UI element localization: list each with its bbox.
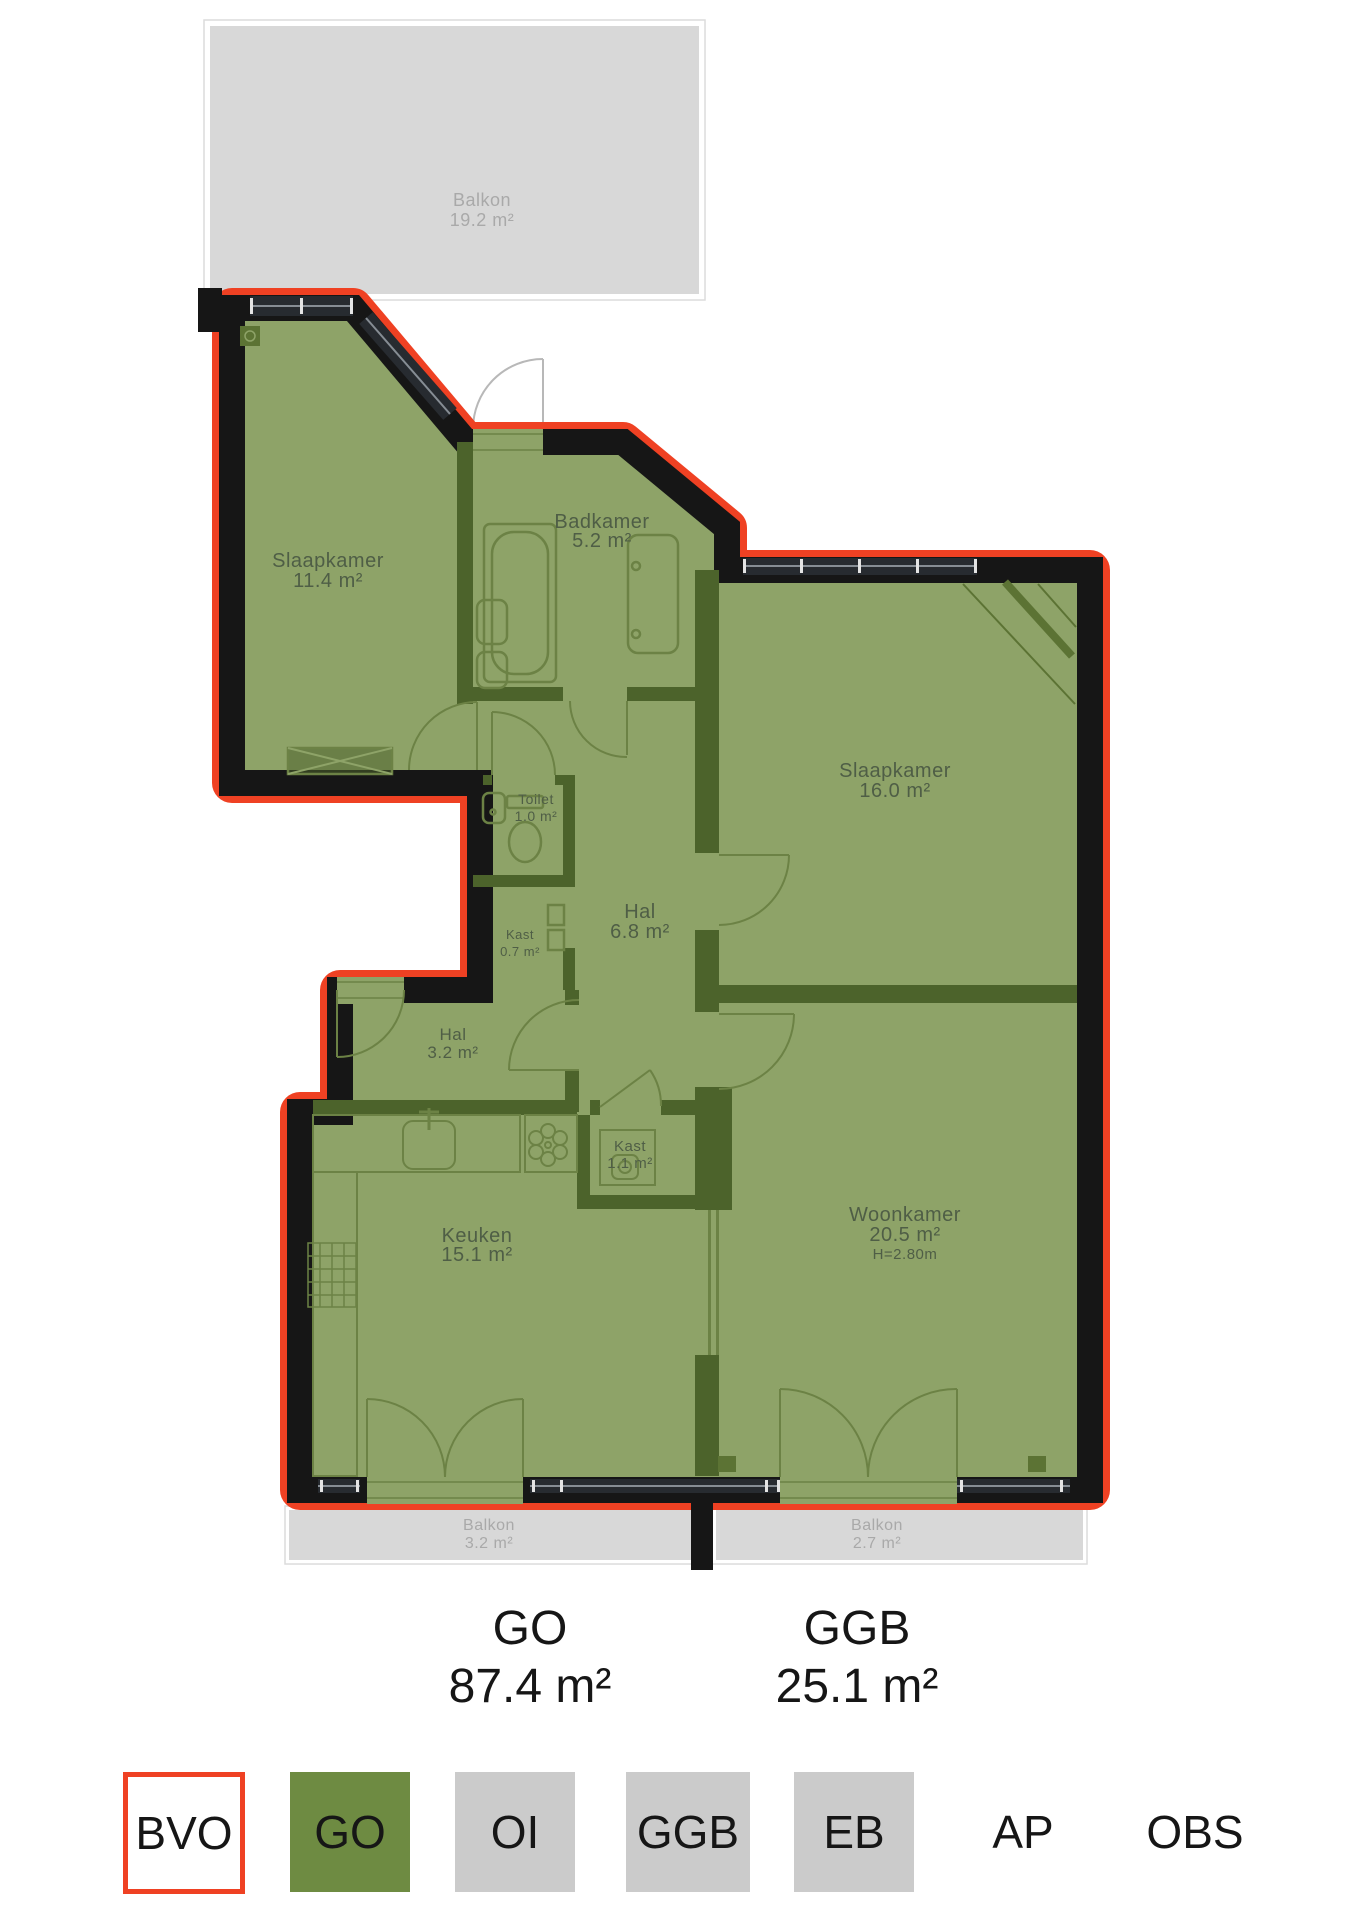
label-hal2-area: 3.2 m² bbox=[427, 1043, 478, 1062]
vent-square-bottom-1 bbox=[718, 1456, 736, 1472]
label-woonkamer-area: 20.5 m² bbox=[869, 1224, 940, 1246]
wardrobe-icon bbox=[288, 748, 392, 774]
totals-go-area: 87.4 m² bbox=[430, 1660, 630, 1714]
label-balkon-rechts-area: 2.7 m² bbox=[853, 1535, 902, 1552]
label-keuken-area: 15.1 m² bbox=[441, 1244, 512, 1266]
label-toilet-name: Toilet bbox=[518, 791, 554, 807]
label-kast-groot-name: Kast bbox=[614, 1138, 646, 1155]
label-kast-klein-name: Kast bbox=[506, 927, 534, 942]
legend-item-bvo: BVO bbox=[123, 1772, 245, 1894]
legend-item-ap: AP bbox=[953, 1772, 1093, 1892]
totals-go-code: GO bbox=[430, 1602, 630, 1656]
legend-label-obs: OBS bbox=[1146, 1805, 1243, 1859]
label-slaapkamer1-area: 11.4 m² bbox=[293, 570, 363, 592]
window-slaapkamer2 bbox=[743, 558, 977, 575]
floorplan-page: Balkon 19.2 m² Slaapkamer 11.4 m² Badkam… bbox=[0, 0, 1358, 1920]
label-toilet-area: 1.0 m² bbox=[515, 808, 558, 824]
label-balkon-boven-area: 19.2 m² bbox=[450, 210, 515, 230]
wall-stub-top-left bbox=[198, 288, 222, 332]
label-slaapkamer2-name: Slaapkamer bbox=[839, 760, 951, 782]
label-hal-area: 6.8 m² bbox=[610, 921, 670, 943]
legend-label-ap: AP bbox=[992, 1805, 1053, 1859]
legend-item-eb: EB bbox=[794, 1772, 914, 1892]
legend-item-obs: OBS bbox=[1125, 1772, 1265, 1892]
legend-label-eb: EB bbox=[823, 1805, 884, 1859]
totals-ggb-code: GGB bbox=[757, 1602, 957, 1656]
label-slaapkamer2-area: 16.0 m² bbox=[859, 780, 930, 802]
floor-plan-svg: Balkon 19.2 m² Slaapkamer 11.4 m² Badkam… bbox=[0, 0, 1358, 1580]
legend-item-ggb: GGB bbox=[626, 1772, 750, 1892]
label-hal2-name: Hal bbox=[439, 1025, 466, 1044]
label-balkon-links-name: Balkon bbox=[463, 1517, 515, 1534]
totals-ggb: GGB 25.1 m² bbox=[757, 1602, 957, 1714]
label-badkamer-area: 5.2 m² bbox=[572, 530, 632, 552]
legend-item-go: GO bbox=[290, 1772, 410, 1892]
legend-label-go: GO bbox=[314, 1805, 386, 1859]
legend-label-bvo: BVO bbox=[135, 1806, 232, 1860]
label-woonkamer-height: H=2.80m bbox=[873, 1246, 938, 1263]
label-woonkamer-name: Woonkamer bbox=[849, 1204, 961, 1226]
label-balkon-links-area: 3.2 m² bbox=[465, 1535, 514, 1552]
balcony-divider-wall bbox=[691, 1497, 713, 1570]
vent-square-bottom-2 bbox=[1028, 1456, 1046, 1472]
label-hal-name: Hal bbox=[624, 901, 656, 923]
totals-go: GO 87.4 m² bbox=[430, 1602, 630, 1714]
balcony-door-arc bbox=[473, 359, 543, 429]
label-kast-klein-area: 0.7 m² bbox=[500, 944, 540, 959]
legend-label-oi: OI bbox=[491, 1805, 540, 1859]
label-slaapkamer1-name: Slaapkamer bbox=[272, 550, 384, 572]
label-balkon-rechts-name: Balkon bbox=[851, 1517, 903, 1534]
label-balkon-boven-name: Balkon bbox=[453, 190, 511, 210]
totals-ggb-area: 25.1 m² bbox=[757, 1660, 957, 1714]
label-kast-groot-area: 1.1 m² bbox=[607, 1155, 653, 1172]
vent-square-top-left bbox=[240, 326, 260, 346]
window-slaapkamer1 bbox=[250, 296, 353, 316]
legend-label-ggb: GGB bbox=[637, 1805, 739, 1859]
legend-item-oi: OI bbox=[455, 1772, 575, 1892]
